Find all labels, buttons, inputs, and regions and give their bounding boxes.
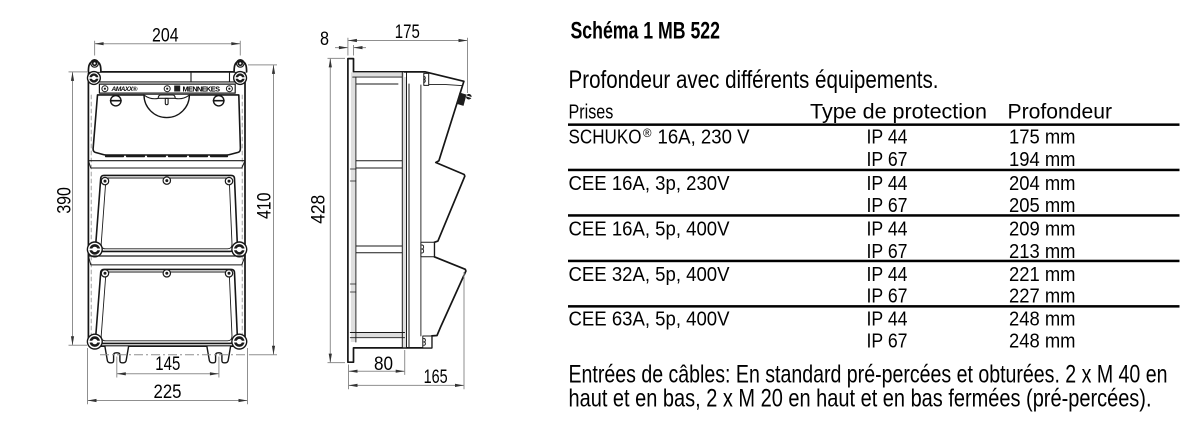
svg-text:175 mm: 175 mm xyxy=(1009,125,1076,148)
svg-text:MENNEKES: MENNEKES xyxy=(183,84,221,93)
svg-text:80: 80 xyxy=(374,354,393,375)
svg-text:205 mm: 205 mm xyxy=(1009,194,1076,217)
svg-text:IP 44: IP 44 xyxy=(867,263,908,286)
svg-text:Profondeur avec différents équ: Profondeur avec différents équipements. xyxy=(569,66,939,94)
svg-text:Prises: Prises xyxy=(569,101,614,124)
svg-text:390: 390 xyxy=(55,187,76,214)
svg-text:IP 67: IP 67 xyxy=(867,148,908,171)
svg-text:CEE 32A, 5p, 400V: CEE 32A, 5p, 400V xyxy=(569,263,730,286)
svg-text:IP 44: IP 44 xyxy=(867,308,908,331)
svg-text:194 mm: 194 mm xyxy=(1009,148,1076,171)
svg-text:IP 67: IP 67 xyxy=(867,194,908,217)
svg-text:175: 175 xyxy=(395,22,420,43)
svg-text:165: 165 xyxy=(424,367,448,388)
svg-text:IP 44: IP 44 xyxy=(867,125,908,148)
svg-text:®: ® xyxy=(643,128,652,140)
svg-text:CEE 16A, 5p, 400V: CEE 16A, 5p, 400V xyxy=(569,218,730,241)
svg-text:IP 67: IP 67 xyxy=(867,330,908,353)
svg-text:CEE 16A, 3p, 230V: CEE 16A, 3p, 230V xyxy=(569,172,730,195)
svg-text:225: 225 xyxy=(154,382,182,403)
svg-text:IP 67: IP 67 xyxy=(867,285,908,308)
svg-text:227 mm: 227 mm xyxy=(1009,285,1076,308)
svg-text:204 mm: 204 mm xyxy=(1009,172,1076,195)
svg-text:248 mm: 248 mm xyxy=(1009,308,1076,331)
svg-text:IP 44: IP 44 xyxy=(867,172,908,195)
svg-text:IP 67: IP 67 xyxy=(867,240,908,263)
svg-text:410: 410 xyxy=(255,193,276,220)
svg-text:248 mm: 248 mm xyxy=(1009,330,1076,353)
svg-text:204: 204 xyxy=(152,26,179,47)
svg-text:IP 44: IP 44 xyxy=(867,218,908,241)
svg-text:AMAXX®: AMAXX® xyxy=(111,85,138,93)
svg-text:145: 145 xyxy=(155,354,180,375)
svg-text:213 mm: 213 mm xyxy=(1009,240,1076,263)
svg-text:221 mm: 221 mm xyxy=(1009,263,1076,286)
svg-text:Profondeur: Profondeur xyxy=(1008,100,1113,124)
svg-text:SCHUKO: SCHUKO xyxy=(569,125,642,148)
svg-text:428: 428 xyxy=(309,195,330,224)
svg-text:16A, 230 V: 16A, 230 V xyxy=(658,125,750,148)
svg-text:Schéma 1 MB 522: Schéma 1 MB 522 xyxy=(571,17,721,44)
svg-text:8: 8 xyxy=(320,29,329,50)
svg-text:CEE 63A, 5p, 400V: CEE 63A, 5p, 400V xyxy=(569,308,730,331)
svg-text:haut et en bas, 2 x M 20 en ha: haut et en bas, 2 x M 20 en haut et en b… xyxy=(569,385,1152,413)
svg-text:209 mm: 209 mm xyxy=(1009,218,1076,241)
svg-text:Type de protection: Type de protection xyxy=(810,100,987,124)
